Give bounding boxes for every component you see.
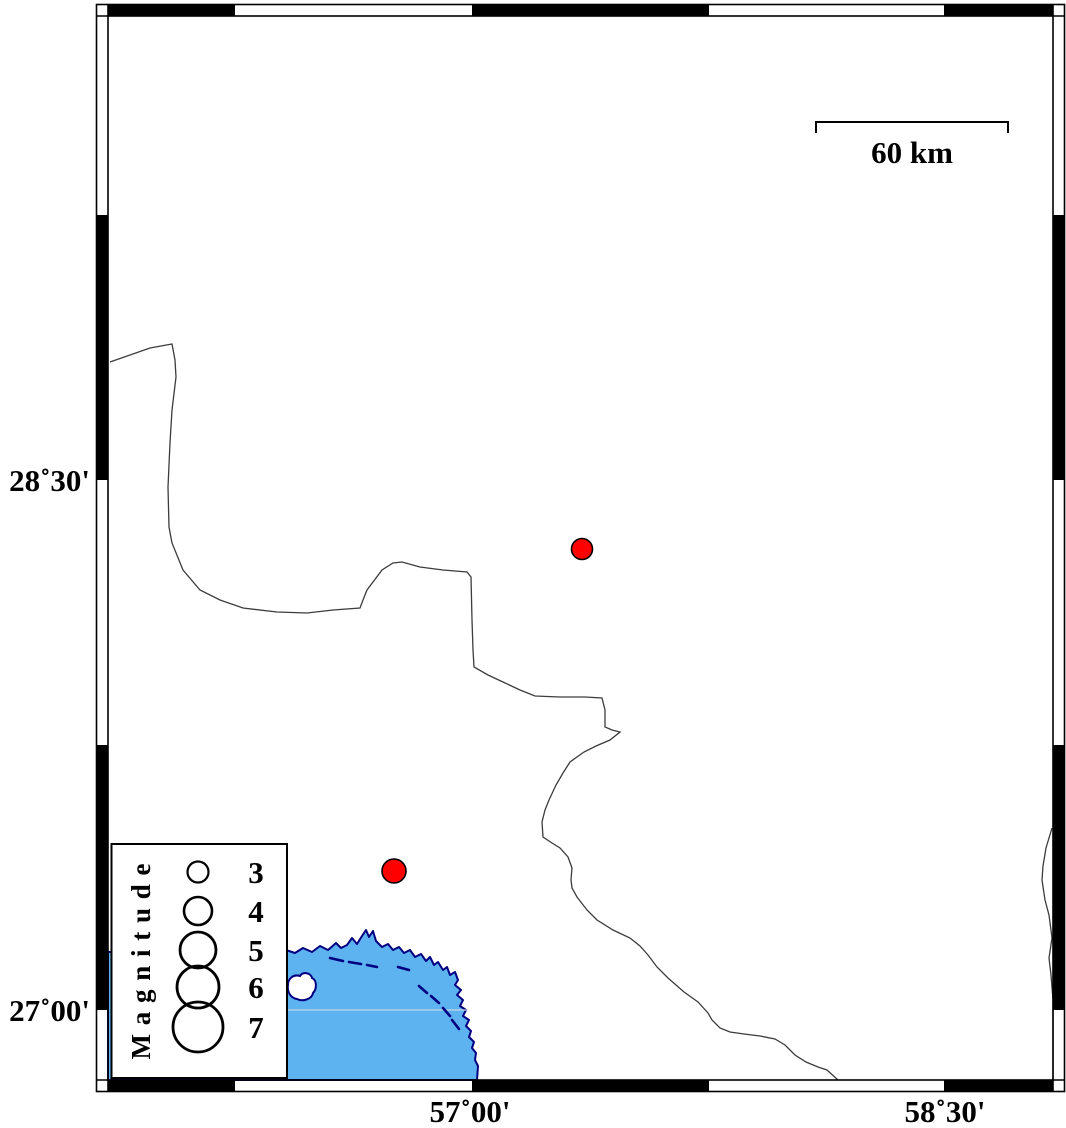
scale-bar-label: 60 km bbox=[871, 135, 953, 170]
legend-label-mag7: 7 bbox=[248, 1010, 264, 1045]
lat-label-27-00: 27˚00' bbox=[9, 993, 90, 1028]
seismicity-map-page: 60 km M a g n i t u d e 3 4 5 6 7 bbox=[0, 0, 1066, 1128]
legend-label-mag3: 3 bbox=[248, 855, 264, 890]
map-canvas: 60 km M a g n i t u d e 3 4 5 6 7 bbox=[0, 0, 1066, 1128]
scale-bar-bracket bbox=[816, 122, 1008, 133]
epicenter-circle-2 bbox=[382, 859, 406, 883]
legend-label-mag6: 6 bbox=[248, 970, 264, 1005]
island bbox=[288, 973, 316, 1000]
epicenter-circle-1 bbox=[572, 539, 593, 560]
lon-label-57-00: 57˚00' bbox=[430, 1094, 511, 1128]
scale-bar: 60 km bbox=[816, 122, 1008, 170]
lon-label-58-30: 58˚30' bbox=[905, 1094, 986, 1128]
lat-label-28-30: 28˚30' bbox=[9, 463, 90, 498]
legend-label-mag4: 4 bbox=[248, 894, 264, 929]
legend-title: M a g n i t u d e bbox=[126, 862, 156, 1059]
magnitude-legend: M a g n i t u d e 3 4 5 6 7 bbox=[112, 844, 288, 1078]
legend-label-mag5: 5 bbox=[248, 933, 264, 968]
admin-boundary-line-right bbox=[1042, 828, 1053, 1080]
